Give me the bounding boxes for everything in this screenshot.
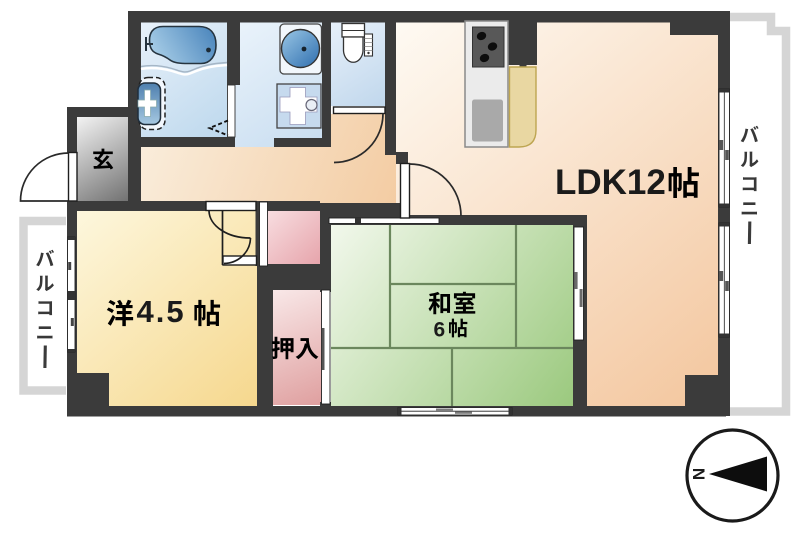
svg-text:6: 6: [434, 319, 446, 342]
svg-text:N: N: [690, 468, 709, 480]
svg-text:4.5: 4.5: [137, 294, 186, 329]
svg-text:LDK12: LDK12: [555, 163, 666, 202]
